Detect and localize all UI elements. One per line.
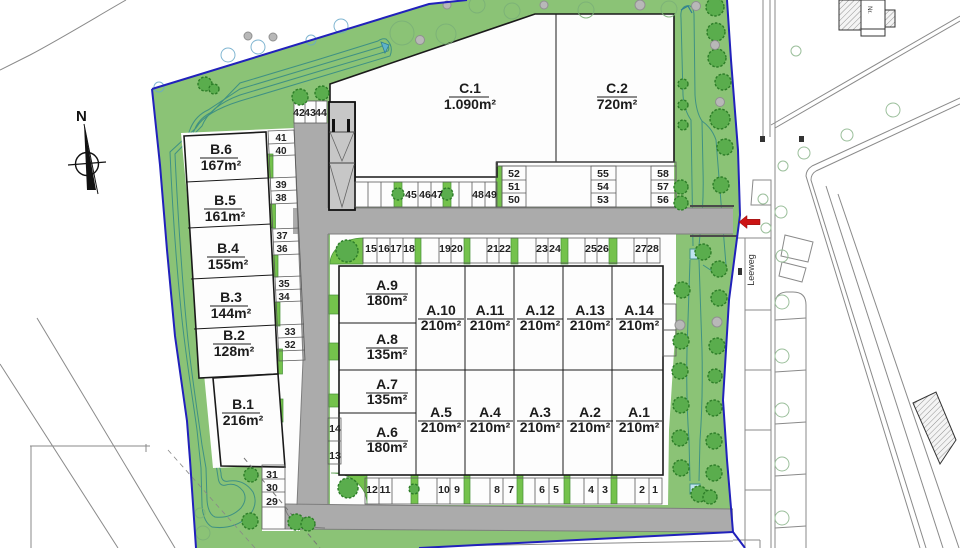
svg-text:144m²: 144m² [211,305,252,321]
svg-text:21: 21 [487,243,499,255]
svg-text:26: 26 [597,243,609,255]
svg-text:Leeweg: Leeweg [746,254,756,286]
svg-text:35: 35 [278,279,290,290]
svg-text:47: 47 [431,189,443,201]
svg-text:50: 50 [508,194,520,206]
svg-text:17: 17 [390,243,402,255]
svg-text:5: 5 [553,484,559,496]
svg-text:14: 14 [329,423,341,435]
svg-text:8: 8 [494,484,500,496]
svg-text:15: 15 [365,243,377,255]
svg-text:A.2: A.2 [579,404,601,420]
svg-text:10: 10 [438,484,450,496]
svg-text:22: 22 [499,243,511,255]
svg-text:A.3: A.3 [529,404,551,420]
svg-text:A.14: A.14 [624,302,654,318]
svg-text:12: 12 [366,484,378,496]
svg-text:49: 49 [485,189,497,201]
svg-text:720m²: 720m² [597,96,638,112]
svg-text:52: 52 [508,168,520,180]
svg-text:9: 9 [454,484,460,496]
svg-text:2: 2 [639,484,645,496]
svg-text:38: 38 [275,193,287,204]
svg-text:B.1: B.1 [232,396,254,412]
svg-text:3: 3 [602,484,608,496]
svg-text:54: 54 [597,181,609,193]
svg-text:A.6: A.6 [376,424,398,440]
svg-text:C.2: C.2 [606,80,628,96]
svg-text:27: 27 [635,243,647,255]
svg-text:23: 23 [536,243,548,255]
svg-text:28: 28 [647,243,659,255]
svg-text:25: 25 [585,243,597,255]
svg-text:A.5: A.5 [430,404,452,420]
svg-text:C.1: C.1 [459,80,481,96]
svg-text:167m²: 167m² [201,157,242,173]
svg-text:N: N [76,108,87,125]
svg-text:51: 51 [508,181,520,193]
svg-text:13: 13 [329,450,341,462]
svg-text:1.090m²: 1.090m² [444,96,496,112]
svg-text:6: 6 [539,484,545,496]
svg-text:56: 56 [657,194,669,206]
svg-text:48: 48 [472,189,484,201]
svg-text:A.12: A.12 [525,302,555,318]
svg-text:B.6: B.6 [210,141,232,157]
svg-text:155m²: 155m² [208,256,249,272]
svg-text:57: 57 [657,181,669,193]
svg-text:32: 32 [284,340,296,351]
svg-text:36: 36 [276,244,288,255]
svg-text:40: 40 [275,146,287,157]
svg-text:A.8: A.8 [376,331,398,347]
svg-text:A.4: A.4 [479,404,501,420]
svg-text:161m²: 161m² [205,208,246,224]
svg-text:41: 41 [275,133,287,144]
svg-text:11: 11 [379,484,390,496]
svg-text:A.1: A.1 [628,404,650,420]
svg-text:45: 45 [405,189,417,201]
svg-text:29: 29 [266,496,278,508]
svg-text:33: 33 [284,327,296,338]
svg-text:B.5: B.5 [214,192,236,208]
svg-text:B.3: B.3 [220,289,242,305]
svg-text:B.4: B.4 [217,240,239,256]
svg-text:37: 37 [276,231,288,242]
svg-text:39: 39 [275,180,287,191]
svg-text:Nr.: Nr. [866,6,872,14]
svg-text:128m²: 128m² [214,343,255,359]
svg-text:A.7: A.7 [376,376,398,392]
svg-text:31: 31 [266,469,278,481]
svg-text:19: 19 [439,243,451,255]
svg-text:18: 18 [403,243,415,255]
svg-text:20: 20 [451,243,463,255]
svg-text:55: 55 [597,168,609,180]
svg-text:A.10: A.10 [426,302,456,318]
svg-text:46: 46 [419,189,431,201]
svg-text:58: 58 [657,168,669,180]
svg-text:7: 7 [508,484,514,496]
svg-text:4: 4 [588,484,594,496]
svg-text:53: 53 [597,194,609,206]
svg-text:A.9: A.9 [376,277,398,293]
svg-text:16: 16 [378,243,390,255]
svg-text:24: 24 [549,243,561,255]
svg-text:44: 44 [315,107,327,119]
svg-text:216m²: 216m² [223,412,264,428]
svg-text:A.11: A.11 [476,302,505,318]
svg-text:B.2: B.2 [223,327,245,343]
svg-text:1: 1 [652,484,658,496]
svg-text:A.13: A.13 [575,302,605,318]
svg-text:30: 30 [266,482,278,494]
svg-text:34: 34 [278,292,290,303]
